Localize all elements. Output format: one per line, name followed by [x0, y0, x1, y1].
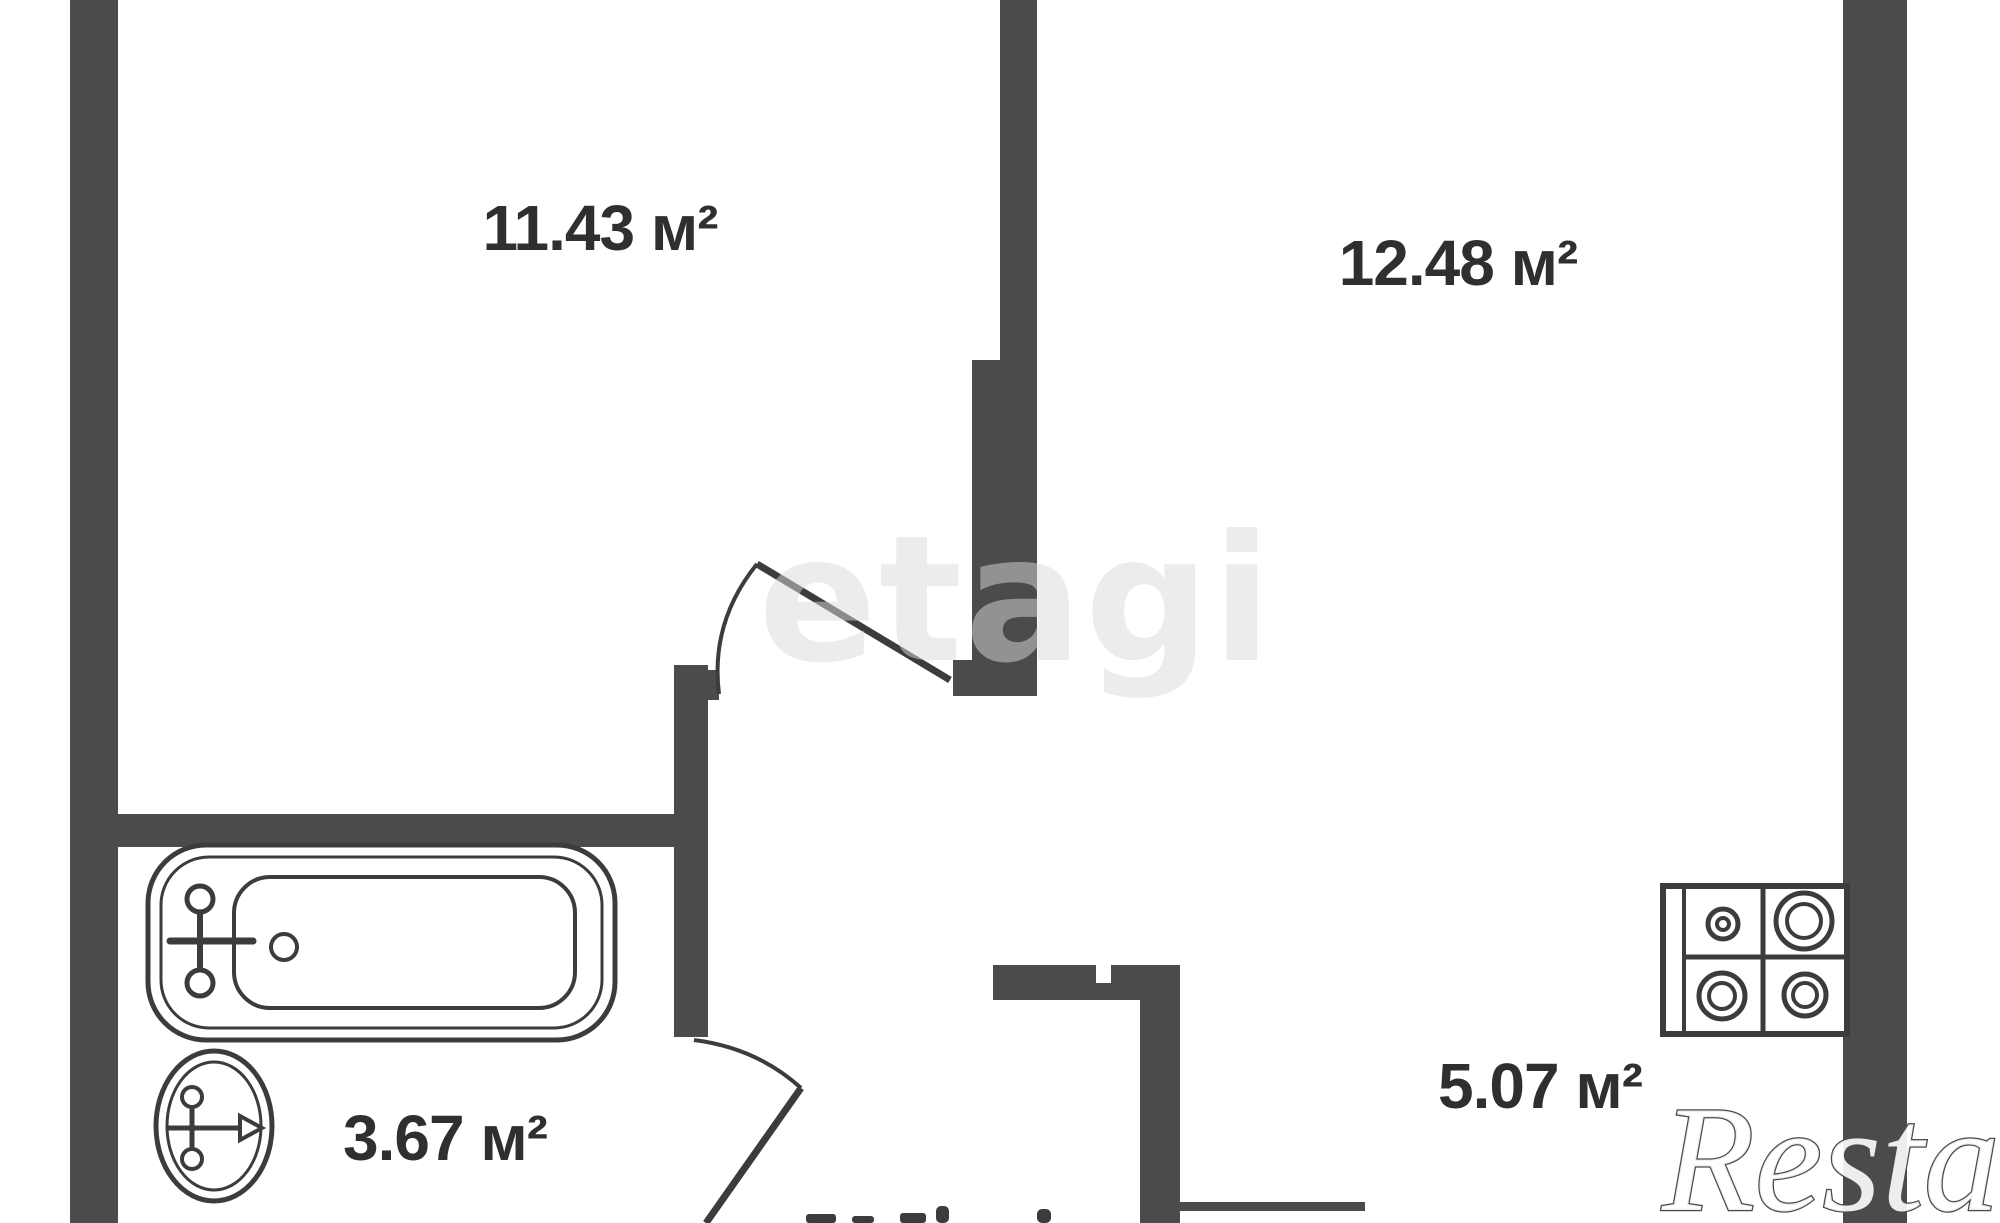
bathroom-door-arc	[694, 1040, 801, 1088]
room-label-bathroom: 3.67 м²	[343, 1102, 547, 1174]
wall-kitchen-vertical	[1140, 998, 1180, 1223]
wall-right-exterior	[1843, 0, 1907, 1223]
wall-bathroom-top	[100, 814, 708, 847]
sink-faucet-spout	[240, 1116, 262, 1140]
wall-left-exterior	[70, 0, 118, 1223]
wall-bottom-sill-line	[1180, 1202, 1365, 1211]
wall-kitchen-horizontal	[993, 965, 1180, 1000]
sink-icon	[156, 1051, 272, 1201]
bathroom-door-leaf	[706, 1088, 801, 1223]
bathtub-drain	[271, 934, 297, 960]
bathtub-faucet-knob-bottom	[187, 970, 213, 996]
floor-plan-svg: 11.43 м² 12.48 м² 3.67 м² 5.07 м² etagi …	[0, 0, 2000, 1223]
glyph-fragment-2	[852, 1216, 874, 1223]
room-label-kitchen: 5.07 м²	[1438, 1050, 1642, 1122]
glyph-fragment-4	[936, 1206, 949, 1223]
glyph-fragment-3	[900, 1213, 926, 1223]
floor-plan-canvas: 11.43 м² 12.48 м² 3.67 м² 5.07 м² etagi …	[0, 0, 2000, 1223]
sink-faucet-knob-top	[182, 1087, 202, 1107]
hall-label-partial	[806, 1206, 1051, 1223]
hall-door-arc	[718, 564, 757, 694]
glyph-fragment-1	[806, 1214, 836, 1223]
glyph-fragment-5	[1037, 1209, 1051, 1223]
watermark-etagi: etagi	[758, 499, 1274, 702]
sink-faucet-knob-bottom	[182, 1149, 202, 1169]
bathtub-icon	[148, 845, 615, 1040]
watermark-restate: Restate	[1661, 1075, 2000, 1223]
bathtub-faucet-knob-top	[187, 886, 213, 912]
room-label-top-left: 11.43 м²	[482, 192, 717, 264]
room-label-top-right: 12.48 м²	[1339, 227, 1578, 299]
wall-bathroom-right	[674, 665, 708, 1037]
wall-kitchen-doorframe-notch	[1096, 965, 1111, 983]
stove-icon	[1663, 886, 1847, 1034]
wall-center-upper	[1000, 0, 1037, 365]
